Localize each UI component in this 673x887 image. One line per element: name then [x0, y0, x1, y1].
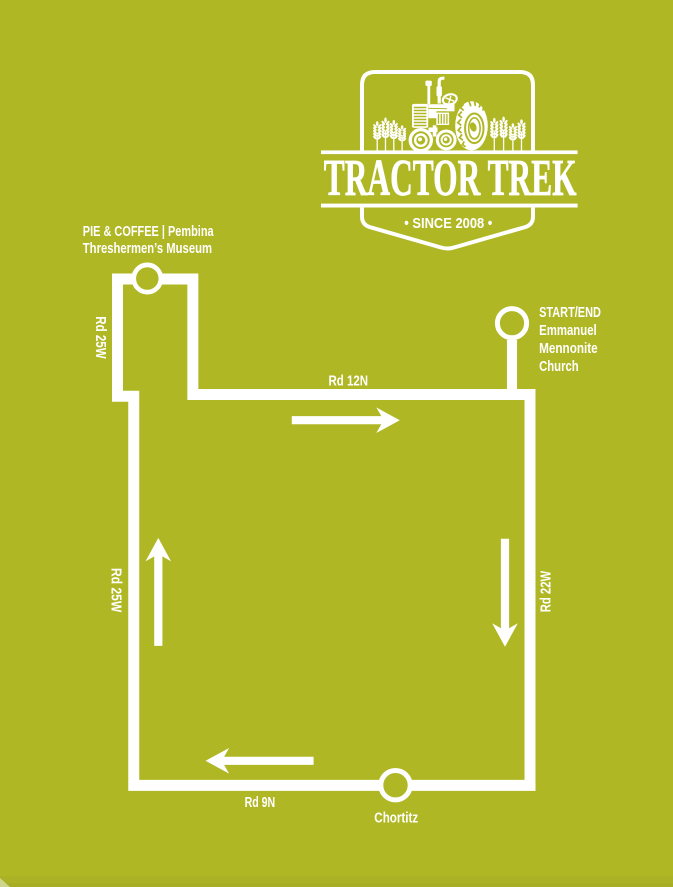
- svg-text:Emmanuel: Emmanuel: [539, 322, 597, 339]
- svg-text:START/END: START/END: [539, 304, 601, 321]
- svg-text:TRACTOR TREK: TRACTOR TREK: [324, 150, 577, 207]
- svg-text:Rd 9N: Rd 9N: [245, 794, 276, 811]
- svg-text:Church: Church: [539, 358, 579, 375]
- svg-text:Mennonite: Mennonite: [539, 340, 598, 357]
- svg-text:Chortitz: Chortitz: [374, 809, 418, 826]
- svg-text:• SINCE 2008 •: • SINCE 2008 •: [404, 215, 492, 232]
- svg-text:PIE & COFFEE | Pembina: PIE & COFFEE | Pembina: [83, 224, 215, 240]
- svg-text:Threshermen’s Museum: Threshermen’s Museum: [83, 241, 212, 257]
- svg-text:Rd 25W: Rd 25W: [108, 568, 125, 613]
- svg-text:Rd 22W: Rd 22W: [538, 570, 555, 612]
- svg-text:Rd 12N: Rd 12N: [329, 373, 369, 390]
- svg-text:Rd 25W: Rd 25W: [92, 316, 109, 359]
